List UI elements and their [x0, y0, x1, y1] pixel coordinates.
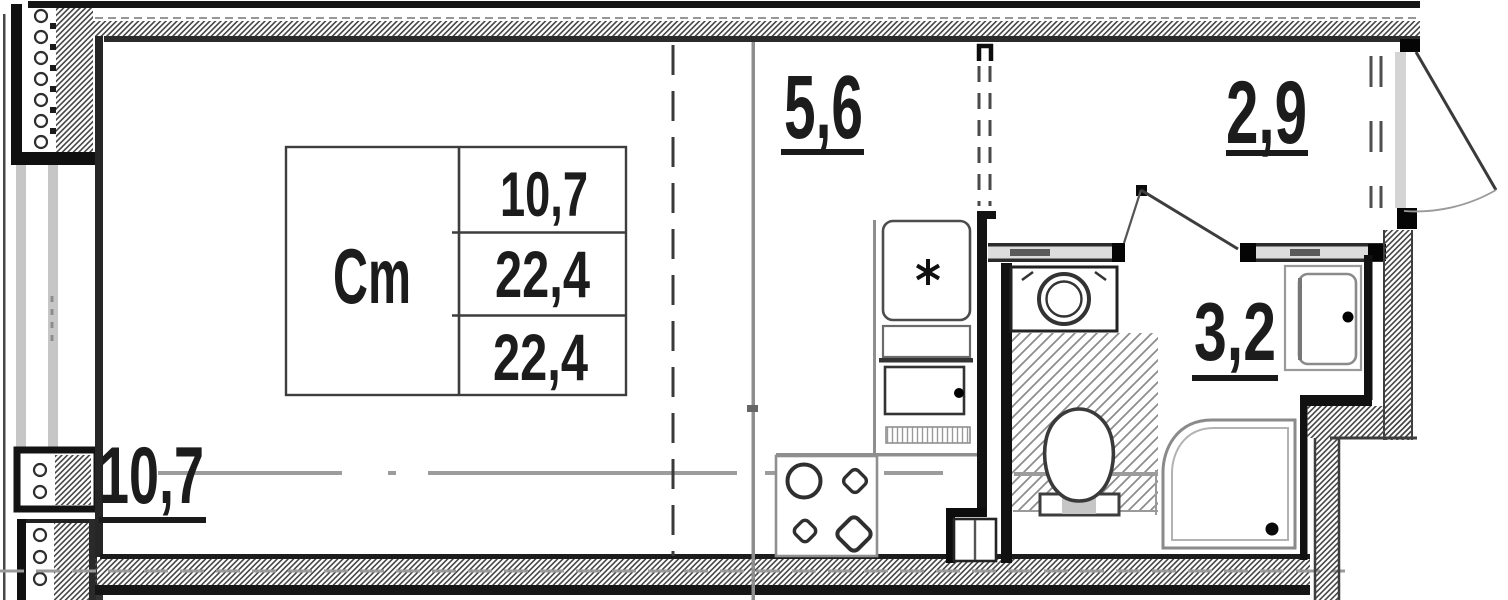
- svg-text:5,6: 5,6: [784, 58, 863, 158]
- svg-text:2,9: 2,9: [1226, 62, 1307, 162]
- svg-text:3,2: 3,2: [1194, 285, 1276, 378]
- svg-text:22,4: 22,4: [495, 237, 590, 311]
- svg-text:Cm: Cm: [333, 232, 411, 320]
- svg-text:10,7: 10,7: [99, 431, 204, 521]
- svg-text:22,4: 22,4: [493, 320, 588, 394]
- svg-text:10,7: 10,7: [500, 160, 588, 230]
